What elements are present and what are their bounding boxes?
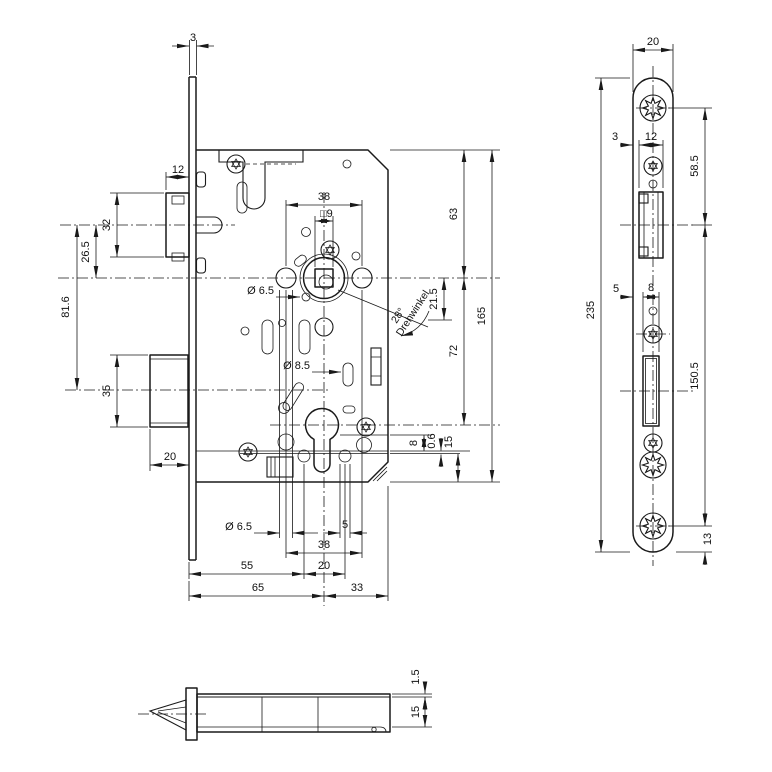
dim-faceplate-length: 235: [585, 78, 630, 552]
dim-label: 8: [648, 282, 654, 294]
dim-label: 1.5: [410, 669, 422, 684]
dim-screw-to-latch-axis: 58.5: [668, 108, 712, 225]
dim-label: 0.6: [426, 433, 438, 448]
drawing-canvas: 3 12 32 26.5 81.6 35 20: [0, 0, 772, 772]
latch-bolt: [166, 193, 222, 261]
dim-label: 5: [613, 283, 619, 295]
dim-label: 65: [252, 582, 264, 594]
dim-label: 58.5: [689, 155, 701, 176]
locking-pawl: [279, 381, 306, 413]
dim-rotation-offset: 21.5: [428, 278, 452, 320]
dim-label: 26.5: [80, 241, 92, 262]
side-case-body: [197, 694, 390, 732]
dim-label: 20: [164, 451, 176, 463]
dim-cover-thickness: 1.5: [392, 669, 432, 709]
deadbolt-window: [643, 356, 659, 426]
dim-label: Ø 6.5: [247, 285, 274, 297]
torx-screw-icon: [357, 418, 375, 436]
dim-label: 81.6: [60, 296, 72, 317]
dim-bolt-cut: 5 8: [613, 282, 659, 352]
dim-label: 55: [241, 560, 253, 572]
dim-label: 235: [585, 301, 597, 319]
euro-cylinder-hole: [305, 408, 338, 472]
dim-label: 38: [318, 539, 330, 551]
dim-label: 15: [443, 436, 455, 448]
dim-label: 35: [101, 385, 113, 397]
dim-label: 12: [172, 164, 184, 176]
dim-case-rear: 33: [324, 486, 388, 601]
dim-backset-to-hole: 55: [189, 560, 304, 579]
lock-dimension-drawing: 3 12 32 26.5 81.6 35 20: [0, 0, 772, 772]
dim-follower-to-cylinder: 72: [448, 278, 464, 425]
dim-edge-15: 15: [443, 436, 458, 482]
rotation-angle-callout: 28° Drehwinkel: [338, 282, 432, 338]
dim-label: 33: [351, 582, 363, 594]
faceplate-centerlines: [620, 66, 695, 566]
dim-latch-to-bolt: 81.6: [60, 225, 77, 390]
dim-label: 32: [101, 219, 113, 231]
dim-handle-hole-dia: Ø 6.5: [247, 285, 300, 297]
torx-screw-icon: [239, 443, 257, 461]
dim-label: 150.5: [689, 362, 701, 390]
dim-label: 12: [645, 131, 657, 143]
dim-label: 72: [448, 345, 460, 357]
dim-label: 165: [476, 307, 488, 325]
dim-case-depth: 15: [392, 697, 432, 727]
fixing-lug: [197, 258, 206, 273]
side-view: 1.5 15: [138, 669, 432, 740]
side-latch-wedge: [150, 700, 186, 730]
dim-backset: 65: [189, 581, 324, 601]
torx-screw-icon: [227, 155, 245, 173]
dim-latch-cut: 3 12: [612, 131, 663, 188]
top-slot: [219, 150, 303, 209]
dim-faceplate-thickness: 3: [172, 32, 214, 75]
fixing-lug: [197, 172, 206, 187]
dim-label: 3: [612, 131, 618, 143]
dim-label: □9: [320, 208, 333, 220]
front-view: 3 12 32 26.5 81.6 35 20: [58, 32, 500, 606]
faceplate-view: 20 235 3 12 58.5 5 8: [585, 36, 714, 566]
dim-latch-to-follower: 26.5: [80, 225, 96, 278]
dim-latch-axis-to-screw: 150.5: [668, 225, 712, 526]
dim-label: 20: [647, 36, 659, 48]
dim-label: 13: [702, 533, 714, 545]
dim-label: 63: [448, 208, 460, 220]
dim-label: 8: [408, 440, 420, 446]
dim-label: 38: [318, 191, 330, 203]
centerlines: [58, 192, 500, 606]
dim-label: Ø 8.5: [283, 360, 310, 372]
deadbolt: [150, 355, 188, 427]
dim-label: Ø 6.5: [225, 521, 252, 533]
dim-label: 20: [318, 560, 330, 572]
dim-label: 21.5: [428, 288, 440, 309]
dim-label: 15: [410, 706, 422, 718]
dim-screw-to-end: 13: [676, 513, 714, 565]
dim-top-to-follower: 63: [390, 150, 500, 278]
dim-cylinder-screw-dia: Ø 8.5: [283, 360, 341, 372]
dim-latch-width: 12: [166, 164, 189, 190]
dim-bolt-throw: 20: [150, 429, 189, 471]
faceplate-edge: [189, 77, 196, 560]
dim-bolt-height: 35: [101, 355, 148, 427]
dim-label: 3: [190, 32, 196, 44]
